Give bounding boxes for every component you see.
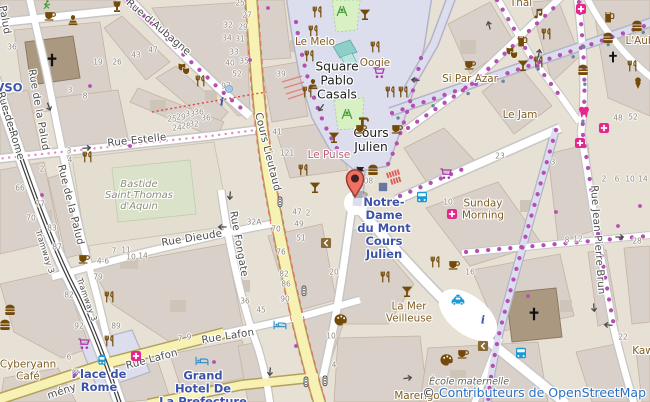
house-number: 19: [93, 58, 103, 67]
statue-icon: [67, 15, 80, 28]
restaurant-icon: [627, 60, 640, 73]
shopdot-icon: [554, 210, 559, 215]
house-number: 45: [256, 306, 266, 315]
fastfood-icon: [4, 304, 17, 317]
pub-icon: [603, 11, 616, 24]
pharmacy-icon: [131, 351, 142, 362]
theatre-icon: [506, 46, 519, 59]
street-name-label: Palud: [0, 5, 12, 36]
house-number: 31: [235, 35, 245, 44]
oneway-arrow-icon: [226, 190, 235, 202]
house-number: 26: [112, 58, 122, 67]
fastfood-icon: [602, 32, 615, 45]
street-name-label: Rue Lafon: [201, 327, 255, 347]
bar-icon: [401, 286, 414, 299]
house-number: 33: [229, 48, 239, 57]
house-number: 89: [111, 322, 121, 331]
restaurant-icon: [195, 75, 208, 88]
house-number: 87: [52, 243, 62, 252]
transit-stop-label: Notre-Damedu MontCoursJulien: [357, 196, 410, 260]
osm-contributors-link[interactable]: Contributeurs de OpenStreetMap: [439, 385, 646, 400]
poi-name-label: La MerVeilleuse: [386, 301, 432, 324]
worship_big-icon: [45, 53, 60, 68]
restaurant-icon: [430, 256, 443, 269]
attribution: © Contributeurs de OpenStreetMap: [422, 385, 646, 400]
restaurant-icon: [304, 50, 317, 63]
oneway-arrow-icon: [81, 144, 93, 153]
place-name-label: SquarePabloCasals: [315, 60, 358, 101]
shopdot-icon: [294, 344, 299, 349]
house-number: 79: [93, 273, 103, 282]
street-name-label: Rue Jean Pierre Brun: [587, 185, 606, 295]
historic-site-label: BastideSaint-Thomasd'Aquin: [105, 179, 173, 213]
oneway-arrow-icon: [217, 223, 228, 231]
restaurant-icon: [398, 86, 411, 99]
house-number: 82: [64, 291, 74, 300]
house-number: 121: [280, 149, 294, 158]
house-number: 29: [238, 23, 248, 32]
shopdot-icon: [638, 204, 643, 209]
restaurant-icon: [385, 86, 398, 99]
house-number: 28: [632, 237, 642, 246]
oneway-arrow-icon: [409, 76, 421, 85]
street-name-label: Rue de la Palud: [54, 164, 85, 247]
house-number: 39: [276, 70, 286, 79]
oneway-arrow-icon: [615, 233, 626, 241]
info-icon: i: [216, 96, 229, 109]
oneway-arrow-icon: [315, 101, 328, 115]
transit-stop-label: Place deRome: [72, 368, 127, 394]
house-number: 90: [280, 295, 290, 304]
street-name-label: Rue Estelle: [107, 132, 167, 150]
restaurant-icon: [104, 291, 117, 304]
pharmacy-icon: [447, 209, 458, 220]
tram-icon: [96, 354, 108, 366]
shopdot-icon: [73, 373, 78, 378]
cafe-icon: [457, 347, 470, 360]
house-number: 77: [35, 200, 45, 209]
taxi-icon: [451, 294, 466, 306]
house-number: 3: [67, 147, 72, 156]
signals-icon: [321, 375, 329, 388]
restaurant-icon: [380, 271, 393, 284]
street-name-label: Tramway 3: [33, 229, 56, 275]
shopdot-icon: [212, 360, 217, 365]
house-number: 10: [625, 175, 635, 184]
house-number: 36: [7, 43, 17, 52]
cafe-icon: [355, 122, 368, 135]
poi-name-label: Kaw: [632, 346, 650, 358]
shop-icon: [78, 338, 91, 351]
cafe-icon: [78, 252, 91, 265]
house-number: 66: [15, 184, 25, 193]
hotel-icon: [195, 356, 209, 367]
door-icon: [321, 238, 332, 249]
shopdot-icon: [266, 6, 271, 11]
restaurant-icon: [312, 6, 325, 19]
house-number: 32A: [247, 218, 262, 227]
nightclub-name-label: Le Pulse: [308, 150, 351, 162]
house-number: 22: [618, 333, 628, 342]
house-number: 70: [271, 225, 281, 234]
house-number: 52: [628, 113, 638, 122]
oneway-arrow-icon: [590, 302, 599, 314]
signals-icon: [302, 376, 310, 389]
street-name-label: Cours Lieutaud: [252, 112, 283, 193]
house-number: 51: [296, 234, 306, 243]
bar-icon: [359, 9, 372, 22]
poi-name-label: L'Aub: [626, 36, 650, 48]
playground-icon: [336, 5, 349, 18]
oneway-arrow-icon: [484, 19, 495, 32]
worship_big-icon: [527, 307, 542, 322]
fastfood-icon: [631, 20, 644, 33]
house-number: 6: [67, 353, 72, 362]
metro-icon: [378, 182, 388, 192]
house-number: 3: [68, 86, 73, 95]
street-name-label: Rue Dieude: [161, 229, 223, 250]
house-number: 14: [638, 175, 648, 184]
bus-icon: [515, 347, 527, 359]
house-number: 92: [74, 322, 84, 331]
location-marker-pin[interactable]: [342, 165, 368, 199]
theatre-icon: [178, 62, 191, 75]
worship-icon: [607, 51, 620, 64]
map-canvas[interactable]: Rue d'AubagneRue EstellePaludRue de la P…: [0, 0, 650, 402]
restaurant-icon: [82, 151, 95, 164]
transit-stop-label: VSO: [0, 82, 22, 95]
signals-icon: [276, 196, 284, 209]
music-icon: [532, 8, 545, 21]
pharmacy-icon: [575, 138, 586, 149]
house-number: 32: [223, 21, 233, 30]
pharmacy-icon: [576, 4, 587, 15]
house-number: 76: [276, 248, 286, 257]
cafe-icon: [391, 122, 404, 135]
house-number: 86: [281, 280, 291, 289]
house-number: 25: [235, 0, 245, 8]
poi-name-label: Le Jam: [503, 110, 538, 122]
street-name-label: Tramway 3: [74, 277, 98, 323]
house-number: 49: [294, 220, 304, 229]
bus-icon: [416, 191, 428, 203]
house-number: 2: [602, 175, 607, 184]
hotel-icon: [273, 320, 287, 331]
oneway-arrow-icon: [602, 321, 614, 330]
house-number: 43: [131, 51, 141, 60]
fastfood-icon: [577, 64, 590, 77]
transit-stop-label: GrandHotel DeLa Prefecture: [159, 370, 247, 402]
bar-icon: [309, 182, 322, 195]
restaurant-icon: [370, 41, 383, 54]
house-number: 83: [47, 224, 57, 233]
house-number: 4-6: [97, 257, 109, 266]
house-number: 8: [565, 236, 570, 245]
house-number: 52: [232, 70, 242, 79]
map-annotations: Rue d'AubagneRue EstellePaludRue de la P…: [0, 0, 650, 402]
statue-icon: [307, 79, 320, 92]
house-number: 34: [222, 34, 232, 43]
shop-icon: [440, 168, 453, 181]
carafe-icon: [111, 1, 124, 14]
dentist-icon: [578, 106, 591, 119]
poi-name-label: Thai: [510, 0, 532, 10]
house-number: 36: [194, 108, 204, 117]
bar-icon: [517, 60, 530, 73]
poi-name-label: SundayMorning: [462, 198, 504, 221]
artwork-icon: [335, 314, 348, 327]
stairs-icon: [386, 169, 404, 186]
oneway-arrow-icon: [402, 373, 414, 382]
restaurant-icon: [541, 28, 554, 41]
info-icon: i: [477, 314, 490, 327]
house-number: 7: [178, 335, 183, 344]
house-number: 8: [83, 92, 88, 101]
cafe-icon: [464, 58, 477, 71]
house-number: 14: [138, 252, 148, 261]
shopdot-icon: [248, 58, 253, 63]
shop-icon: [373, 67, 386, 80]
playground-icon: [341, 108, 354, 121]
house-number: 12: [573, 235, 583, 244]
house-number: 41: [272, 128, 282, 137]
poi-name-label: Le Melo: [295, 37, 335, 49]
house-number: 20: [329, 268, 339, 277]
oneway-arrow-icon: [266, 366, 275, 378]
house-number: 4: [332, 361, 337, 370]
door-icon: [478, 341, 489, 352]
restaurant-icon: [308, 25, 321, 38]
house-number: 47: [148, 46, 158, 55]
house-number: 3: [551, 158, 556, 167]
copyright-symbol: ©: [422, 385, 435, 400]
house-number: 2: [306, 209, 311, 218]
pharmacy-icon: [599, 123, 610, 134]
fastfood-icon: [367, 164, 380, 177]
house-number: 9: [187, 333, 192, 342]
house-number: 10: [126, 253, 136, 262]
restaurant-icon: [298, 164, 311, 177]
restaurant-icon: [104, 335, 117, 348]
artwork-icon: [441, 354, 454, 367]
bar-icon: [328, 132, 341, 145]
house-number: 27: [242, 11, 252, 20]
house-number: 32: [189, 120, 199, 129]
house-number: 82: [279, 270, 289, 279]
house-number: 6: [615, 175, 620, 184]
shopdot-icon: [40, 193, 45, 198]
house-number: 70: [26, 214, 36, 223]
house-number: 23: [495, 152, 505, 161]
icecream-icon: [632, 77, 645, 90]
house-number: 10: [443, 198, 453, 207]
house-number: 36: [240, 297, 250, 306]
signals-icon: [300, 285, 308, 298]
bluedot-icon: [225, 85, 234, 94]
cafe-icon: [448, 258, 461, 271]
house-number: 47: [292, 208, 302, 217]
fastfood-icon: [0, 319, 12, 332]
house-number: 7: [112, 247, 117, 256]
house-number: 2: [40, 165, 45, 174]
house-number: 48: [613, 114, 623, 123]
poi-name-label: CyberyannCafé: [0, 359, 56, 382]
shopdot-icon: [526, 294, 531, 299]
shopdot-icon: [128, 144, 133, 149]
house-number: 16: [465, 268, 475, 277]
poi-name-label: Si Par Azar: [442, 74, 498, 86]
shopdot-icon: [616, 224, 621, 229]
fitness-icon: [40, 0, 53, 12]
house-number: 4: [68, 156, 73, 165]
street-name-label: Rue de Rome: [0, 91, 26, 162]
house-number: 10: [326, 332, 336, 341]
shopdot-icon: [88, 84, 93, 89]
house-number: 40: [225, 59, 235, 68]
